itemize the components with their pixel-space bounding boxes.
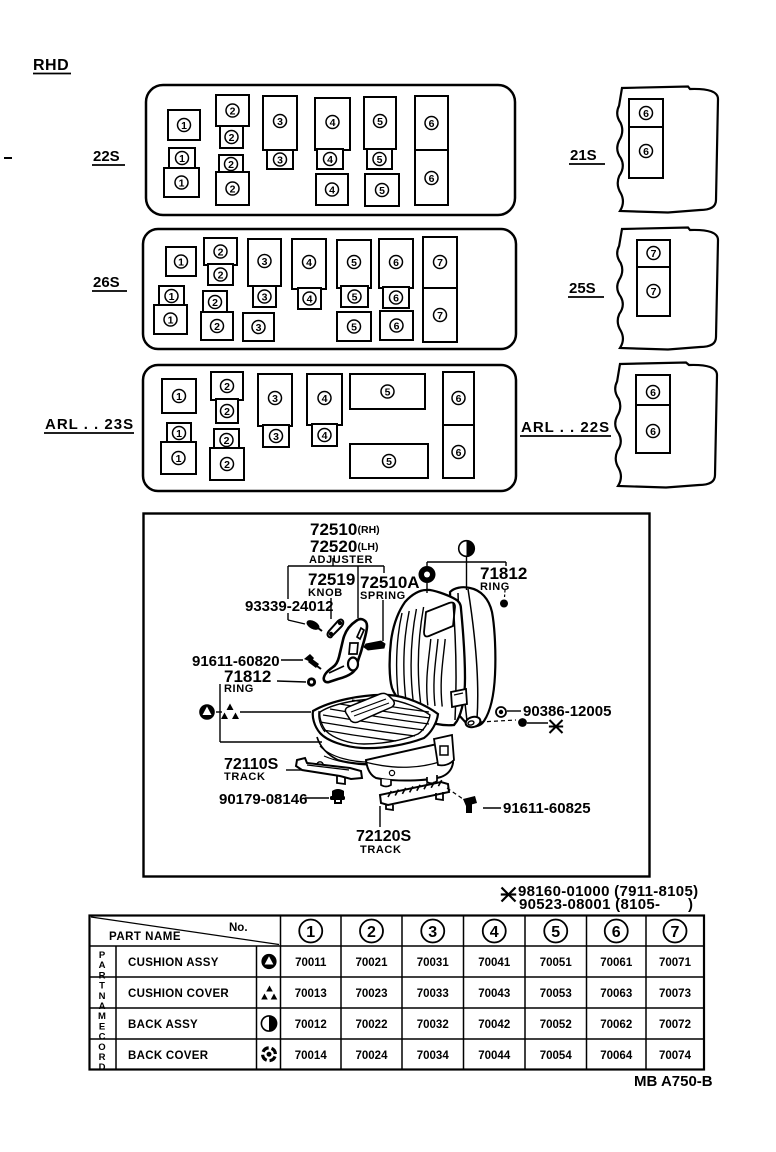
svg-text:2: 2 (228, 159, 234, 171)
svg-text:70024: 70024 (356, 1050, 389, 1062)
svg-text:7: 7 (437, 257, 443, 269)
svg-text:3: 3 (262, 291, 268, 303)
svg-text:70071: 70071 (659, 957, 692, 969)
svg-text:7: 7 (651, 248, 657, 260)
svg-text:6: 6 (429, 118, 435, 130)
svg-text:70023: 70023 (356, 988, 388, 1000)
svg-text:5: 5 (379, 185, 385, 197)
svg-text:(RH): (RH) (358, 524, 380, 536)
svg-text:72120S: 72120S (356, 828, 411, 845)
svg-text:4: 4 (329, 184, 335, 196)
svg-text:4: 4 (322, 430, 328, 442)
svg-text:3: 3 (262, 256, 268, 268)
svg-text:TRACK: TRACK (224, 771, 266, 783)
svg-text:2: 2 (224, 435, 230, 447)
svg-text:3: 3 (277, 116, 283, 128)
svg-text:2: 2 (212, 297, 218, 309)
svg-text:3: 3 (428, 924, 437, 941)
svg-text:70053: 70053 (540, 988, 572, 1000)
svg-text:7: 7 (671, 924, 680, 941)
svg-text:5: 5 (377, 154, 383, 166)
svg-text:70063: 70063 (600, 988, 632, 1000)
svg-text:6: 6 (394, 320, 400, 332)
svg-text:3: 3 (272, 393, 278, 405)
svg-text:2: 2 (224, 381, 230, 393)
svg-text:70032: 70032 (417, 1019, 449, 1031)
svg-text:1: 1 (176, 453, 182, 465)
svg-text:4: 4 (322, 393, 328, 405)
svg-text:4: 4 (306, 257, 312, 269)
svg-text:90386-12005: 90386-12005 (523, 703, 611, 720)
svg-text:70031: 70031 (417, 957, 450, 969)
svg-text:6: 6 (429, 173, 435, 185)
svg-text:4: 4 (327, 154, 333, 166)
svg-text:1: 1 (168, 314, 174, 326)
svg-text:90523-08001 (8105-: 90523-08001 (8105- (519, 896, 660, 913)
svg-text:70073: 70073 (659, 988, 691, 1000)
svg-text:CUSHION COVER: CUSHION COVER (128, 988, 229, 1000)
svg-text:4: 4 (490, 924, 499, 941)
svg-text:70022: 70022 (356, 1019, 388, 1031)
svg-text:22S: 22S (93, 148, 120, 165)
svg-text:90179-08146: 90179-08146 (219, 791, 307, 808)
svg-text:1: 1 (179, 177, 185, 189)
svg-text:ADJUSTER: ADJUSTER (309, 554, 373, 566)
svg-text:70012: 70012 (295, 1019, 327, 1031)
svg-text:7: 7 (437, 310, 443, 322)
svg-text:No.: No. (229, 922, 248, 934)
svg-text:1: 1 (179, 153, 185, 165)
svg-text:70072: 70072 (659, 1019, 691, 1031)
svg-text:2: 2 (214, 321, 220, 333)
svg-text:2: 2 (230, 183, 236, 195)
svg-text:70074: 70074 (659, 1050, 692, 1062)
svg-text:5: 5 (351, 257, 357, 269)
svg-text:RHD: RHD (33, 57, 69, 74)
svg-text:1: 1 (176, 428, 182, 440)
svg-text:6: 6 (650, 426, 656, 438)
svg-text:70014: 70014 (295, 1050, 328, 1062)
svg-text:2: 2 (218, 246, 224, 258)
svg-text:6: 6 (643, 108, 649, 120)
svg-text:RING: RING (224, 683, 254, 695)
svg-text:2: 2 (224, 459, 230, 471)
svg-text:ARL . . 22S: ARL . . 22S (521, 419, 610, 436)
svg-text:TRACK: TRACK (360, 844, 402, 856)
svg-text:2: 2 (367, 924, 376, 941)
svg-text:2: 2 (230, 105, 236, 117)
svg-text:70013: 70013 (295, 988, 327, 1000)
svg-text:5: 5 (551, 924, 560, 941)
svg-text:70062: 70062 (600, 1019, 632, 1031)
svg-text:2: 2 (229, 132, 235, 144)
svg-text:6: 6 (643, 146, 649, 158)
svg-text:70054: 70054 (540, 1050, 573, 1062)
svg-text:70064: 70064 (600, 1050, 633, 1062)
svg-text:3: 3 (277, 154, 283, 166)
svg-text:70011: 70011 (295, 957, 327, 969)
svg-text:RING: RING (480, 581, 510, 593)
svg-text:1: 1 (176, 391, 182, 403)
svg-text:93339-24012: 93339-24012 (245, 598, 333, 615)
svg-text:70061: 70061 (600, 957, 633, 969)
svg-text:6: 6 (612, 924, 621, 941)
svg-text:7: 7 (651, 286, 657, 298)
svg-text:5: 5 (351, 321, 357, 333)
svg-text:MB A750-B: MB A750-B (634, 1073, 713, 1090)
svg-text:6: 6 (456, 447, 462, 459)
svg-text:2: 2 (218, 269, 224, 281)
svg-text:70034: 70034 (417, 1050, 450, 1062)
svg-text:70043: 70043 (478, 988, 510, 1000)
svg-text:5: 5 (352, 291, 358, 303)
svg-text:ARL . . 23S: ARL . . 23S (45, 416, 134, 433)
svg-text:3: 3 (273, 431, 279, 443)
svg-text:6: 6 (393, 292, 399, 304)
svg-text:5: 5 (377, 116, 383, 128)
svg-text:1: 1 (181, 120, 187, 132)
svg-text:1: 1 (306, 924, 315, 941)
svg-text:91611-60825: 91611-60825 (503, 800, 591, 817)
svg-text:70051: 70051 (540, 957, 573, 969)
svg-text:70021: 70021 (356, 957, 389, 969)
svg-text:70033: 70033 (417, 988, 449, 1000)
svg-text:6: 6 (650, 387, 656, 399)
svg-text:BACK COVER: BACK COVER (128, 1050, 209, 1062)
svg-text:BACK ASSY: BACK ASSY (128, 1019, 198, 1031)
svg-text:1: 1 (178, 256, 184, 268)
svg-text:6: 6 (456, 393, 462, 405)
svg-text:4: 4 (330, 117, 336, 129)
svg-text:CUSHION ASSY: CUSHION ASSY (128, 957, 219, 969)
svg-text:SPRING: SPRING (360, 590, 406, 602)
svg-text:(LH): (LH) (358, 541, 379, 553)
svg-text:D: D (99, 1062, 106, 1073)
svg-text:70044: 70044 (478, 1050, 511, 1062)
svg-text:70041: 70041 (478, 957, 511, 969)
svg-text:2: 2 (224, 406, 230, 418)
svg-text:6: 6 (393, 257, 399, 269)
svg-text:1: 1 (169, 291, 175, 303)
svg-text:3: 3 (256, 322, 262, 334)
svg-text:70042: 70042 (478, 1019, 510, 1031)
svg-text:21S: 21S (570, 147, 597, 164)
svg-text:PART NAME: PART NAME (109, 931, 181, 943)
svg-text:): ) (688, 896, 693, 913)
svg-text:25S: 25S (569, 280, 596, 297)
svg-text:70052: 70052 (540, 1019, 572, 1031)
svg-text:4: 4 (307, 293, 313, 305)
svg-text:5: 5 (386, 456, 392, 468)
svg-text:5: 5 (385, 386, 391, 398)
svg-text:26S: 26S (93, 274, 120, 291)
